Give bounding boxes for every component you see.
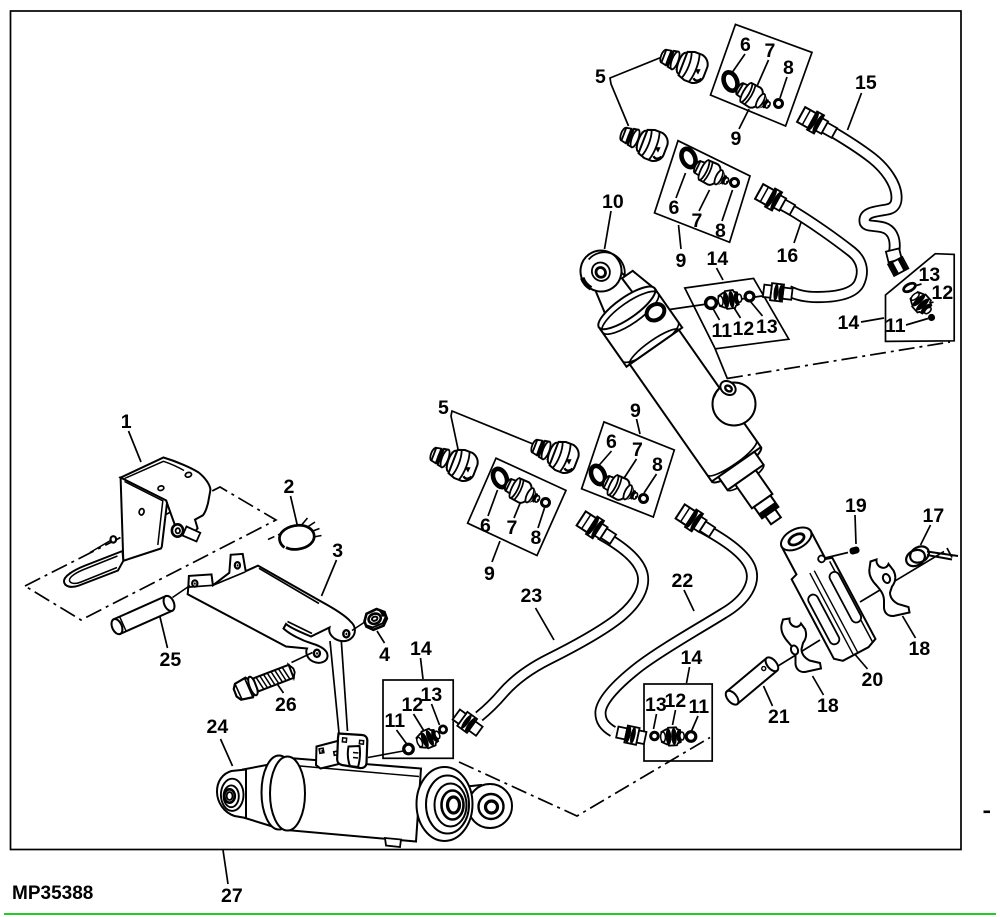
svg-text:13: 13 bbox=[756, 316, 778, 338]
svg-text:9: 9 bbox=[676, 250, 687, 272]
svg-text:12: 12 bbox=[733, 318, 755, 340]
svg-text:25: 25 bbox=[160, 649, 182, 671]
svg-text:11: 11 bbox=[385, 710, 406, 732]
svg-text:7: 7 bbox=[632, 439, 643, 461]
svg-text:5: 5 bbox=[595, 66, 606, 88]
svg-text:6: 6 bbox=[740, 34, 751, 56]
svg-text:1: 1 bbox=[121, 411, 132, 433]
svg-text:6: 6 bbox=[606, 431, 617, 453]
svg-text:6: 6 bbox=[480, 515, 491, 537]
svg-text:23: 23 bbox=[521, 585, 543, 607]
svg-text:14: 14 bbox=[838, 312, 860, 334]
svg-text:14: 14 bbox=[707, 248, 729, 270]
svg-text:9: 9 bbox=[484, 563, 495, 585]
svg-text:7: 7 bbox=[765, 40, 776, 62]
svg-text:17: 17 bbox=[923, 505, 945, 527]
svg-text:18: 18 bbox=[909, 638, 931, 660]
svg-text:24: 24 bbox=[207, 716, 229, 738]
svg-text:7: 7 bbox=[507, 517, 518, 539]
svg-text:14: 14 bbox=[410, 638, 432, 660]
svg-text:7: 7 bbox=[692, 210, 703, 232]
svg-text:5: 5 bbox=[438, 397, 449, 419]
svg-text:2: 2 bbox=[284, 476, 295, 498]
svg-text:12: 12 bbox=[932, 282, 954, 304]
svg-text:12: 12 bbox=[665, 690, 687, 712]
svg-text:8: 8 bbox=[531, 527, 542, 549]
svg-text:19: 19 bbox=[845, 495, 867, 517]
svg-text:14: 14 bbox=[681, 647, 703, 669]
svg-text:15: 15 bbox=[855, 72, 877, 94]
svg-text:26: 26 bbox=[275, 694, 297, 716]
svg-text:18: 18 bbox=[817, 695, 839, 717]
svg-text:11: 11 bbox=[689, 696, 710, 718]
svg-text:13: 13 bbox=[421, 684, 443, 706]
svg-text:16: 16 bbox=[777, 245, 799, 267]
svg-text:8: 8 bbox=[783, 57, 794, 79]
svg-text:21: 21 bbox=[768, 706, 790, 728]
svg-text:9: 9 bbox=[630, 400, 641, 422]
svg-text:8: 8 bbox=[652, 454, 663, 476]
svg-text:27: 27 bbox=[221, 885, 243, 907]
svg-text:6: 6 bbox=[669, 197, 680, 219]
svg-text:20: 20 bbox=[862, 669, 884, 691]
svg-text:3: 3 bbox=[332, 540, 343, 562]
svg-text:9: 9 bbox=[731, 128, 742, 150]
svg-text:11: 11 bbox=[885, 315, 906, 337]
svg-text:MP35388: MP35388 bbox=[12, 883, 93, 904]
svg-text:10: 10 bbox=[602, 191, 624, 213]
svg-text:22: 22 bbox=[672, 570, 694, 592]
svg-text:11: 11 bbox=[712, 320, 733, 342]
svg-text:8: 8 bbox=[715, 220, 726, 242]
svg-text:4: 4 bbox=[379, 644, 390, 666]
